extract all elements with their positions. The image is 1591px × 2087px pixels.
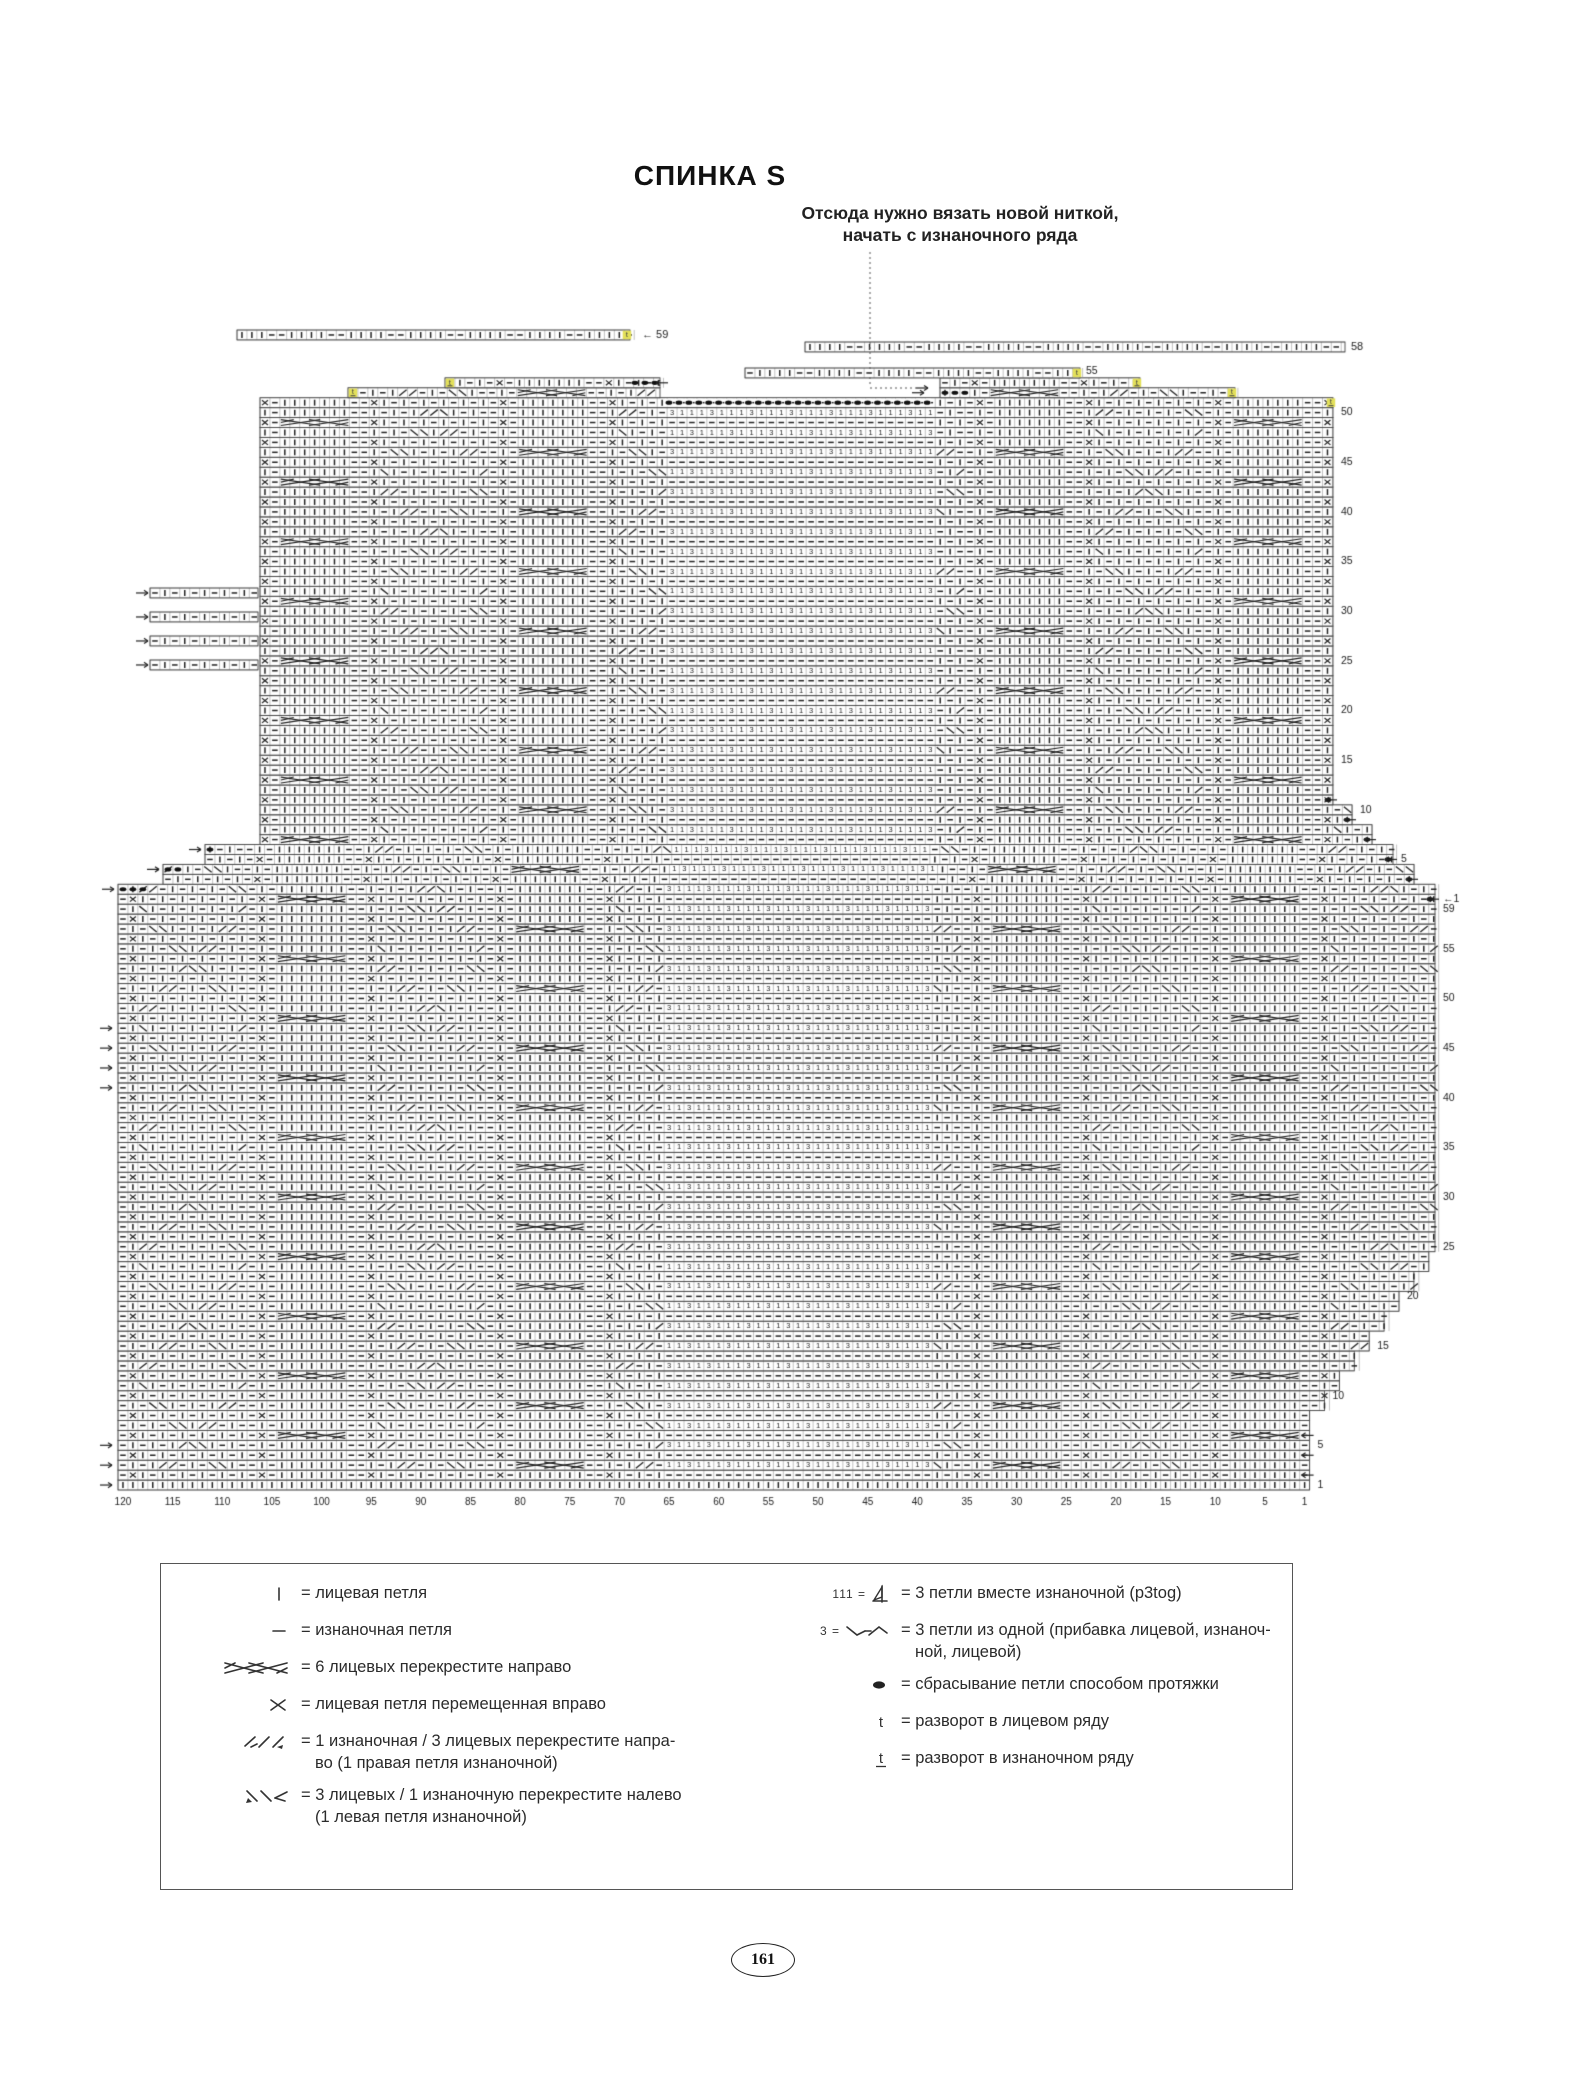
legend-item-text-wrap: ной, лицевой)	[901, 1641, 1281, 1663]
legend-item-text: = разворот в изнаночном ряду	[901, 1747, 1281, 1769]
legend-item: t= разворот в изнаночном ряду	[781, 1747, 1281, 1775]
knitting-chart-canvas	[85, 240, 1515, 1540]
legend-item-text: = изнаночная петля	[301, 1619, 741, 1641]
legend-item-text: = 3 петли вместе изнаночной (p3tog)	[901, 1582, 1281, 1604]
legend-item-text: = лицевая петля	[301, 1582, 741, 1604]
purl-icon	[181, 1621, 301, 1641]
legend-item: 3 = = 3 петли из одной (прибавка лицевой…	[781, 1619, 1281, 1664]
p1k3-right-icon	[181, 1732, 301, 1752]
drop-icon	[781, 1675, 901, 1695]
inc3-icon: 3 =	[781, 1621, 901, 1641]
annotation-line1: Отсюда нужно вязать новой ниткой,	[801, 203, 1118, 223]
svg-text:t: t	[879, 1714, 884, 1731]
symbol-prefix: 3 =	[820, 1624, 840, 1638]
legend-item-text: = лицевая петля перемещенная вправо	[301, 1693, 741, 1715]
symbol-prefix: 111 =	[832, 1587, 866, 1601]
k3p1-left-icon	[181, 1786, 301, 1806]
legend-item-text: = 3 лицевых / 1 изнаночную перекрестите …	[301, 1784, 741, 1829]
cross-right-icon	[181, 1695, 301, 1715]
legend-column-left: = лицевая петля= изнаночная петля = 6 ли…	[181, 1582, 741, 1837]
legend-item: t= разворот в лицевом ряду	[781, 1710, 1281, 1738]
legend-column-right: 111 = = 3 петли вместе изнаночной (p3tog…	[781, 1582, 1281, 1784]
pattern-book-page: СПИНКА S Отсюда нужно вязать новой нитко…	[0, 0, 1591, 2087]
cable6-icon	[181, 1658, 301, 1678]
page-number-badge: 161	[731, 1943, 795, 1977]
legend-item: = 6 лицевых перекрестите направо	[181, 1656, 741, 1684]
legend-item-text: = 6 лицевых перекрестите направо	[301, 1656, 741, 1678]
legend-item: = 1 изнаночная / 3 лицевых перекрестите …	[181, 1730, 741, 1775]
svg-text:t: t	[879, 1750, 884, 1767]
legend-item-text: = 3 петли из одной (прибавка лицевой, из…	[901, 1619, 1281, 1664]
legend-item-text-wrap: во (1 правая петля изнаночной)	[301, 1752, 741, 1774]
page-number: 161	[751, 1951, 775, 1969]
legend-item-text: = сбрасывание петли способом протяжки	[901, 1673, 1281, 1695]
legend-item: = лицевая петля	[181, 1582, 741, 1610]
legend-item: 111 = = 3 петли вместе изнаночной (p3tog…	[781, 1582, 1281, 1610]
turn-ws-icon: t	[781, 1749, 901, 1771]
legend-item: = изнаночная петля	[181, 1619, 741, 1647]
legend-item-text: = разворот в лицевом ряду	[901, 1710, 1281, 1732]
legend-item-text: = 1 изнаночная / 3 лицевых перекрестите …	[301, 1730, 741, 1775]
page-title: СПИНКА S	[0, 160, 1420, 192]
legend-item: = сбрасывание петли способом протяжки	[781, 1673, 1281, 1701]
legend-box: = лицевая петля= изнаночная петля = 6 ли…	[160, 1563, 1293, 1890]
knit-icon	[181, 1584, 301, 1604]
turn-rs-icon: t	[781, 1712, 901, 1734]
legend-item: = 3 лицевых / 1 изнаночную перекрестите …	[181, 1784, 741, 1829]
legend-item-text-wrap: (1 левая петля изнаночной)	[301, 1806, 741, 1828]
p3tog-icon: 111 =	[781, 1584, 901, 1604]
legend-item: = лицевая петля перемещенная вправо	[181, 1693, 741, 1721]
